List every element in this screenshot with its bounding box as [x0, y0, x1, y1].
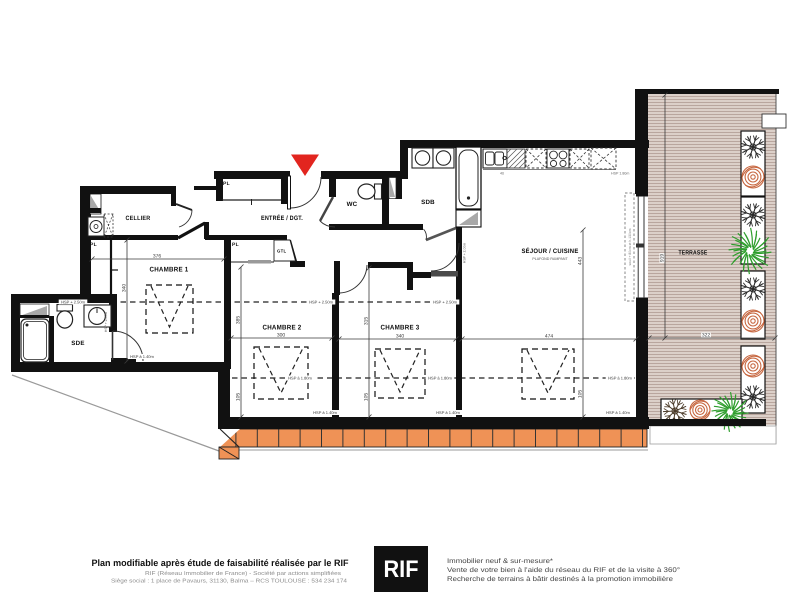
svg-text:443: 443	[578, 257, 584, 266]
svg-text:PL: PL	[90, 242, 97, 248]
svg-text:HSP à 1.40m: HSP à 1.40m	[606, 410, 630, 415]
svg-text:474: 474	[545, 334, 554, 340]
svg-text:seuil + 80cm et h.130cm: seuil + 80cm et h.130cm	[628, 228, 632, 265]
svg-text:WC: WC	[347, 201, 358, 208]
svg-text:300: 300	[277, 333, 286, 339]
svg-text:ENTRÉE / DGT.: ENTRÉE / DGT.	[261, 214, 303, 222]
svg-text:CELLIER: CELLIER	[126, 215, 151, 222]
svg-text:Siège social : 1 place de Pava: Siège social : 1 place de Pavaurs, 31130…	[111, 578, 347, 585]
svg-text:40: 40	[500, 172, 504, 176]
svg-text:HSP + 2.50m: HSP + 2.50m	[61, 300, 85, 305]
svg-text:PLAFOND RAMPANT: PLAFOND RAMPANT	[532, 257, 568, 261]
svg-text:105: 105	[578, 390, 584, 399]
svg-text:HSP + 2.00m: HSP + 2.00m	[463, 243, 467, 263]
svg-text:315: 315	[364, 317, 370, 326]
svg-text:SDB: SDB	[421, 199, 435, 206]
svg-text:CHAMBRE 2: CHAMBRE 2	[263, 325, 302, 332]
svg-text:322: 322	[702, 333, 711, 339]
svg-text:Plan modifiable après étude de: Plan modifiable après étude de faisabili…	[92, 558, 349, 568]
svg-text:HSP à 1.80m: HSP à 1.80m	[288, 376, 312, 381]
svg-text:PL: PL	[232, 242, 239, 248]
svg-text:HSP + 2.50m: HSP + 2.50m	[309, 300, 333, 305]
svg-text:105: 105	[364, 393, 370, 402]
svg-text:SÉJOUR / CUISINE: SÉJOUR / CUISINE	[522, 247, 579, 255]
svg-text:376: 376	[153, 254, 162, 260]
svg-text:CHAMBRE 1: CHAMBRE 1	[150, 267, 189, 274]
svg-text:340: 340	[396, 334, 405, 340]
svg-text:Recherche de terrains à bâtir: Recherche de terrains à bâtir destinés à…	[447, 576, 673, 583]
svg-text:HSP + 2.00m: HSP + 2.00m	[104, 312, 108, 332]
svg-text:Vente de votre bien à l'aide d: Vente de votre bien à l'aide du réseau d…	[447, 567, 680, 574]
svg-text:GTL: GTL	[277, 249, 286, 254]
svg-text:RIF (Réseau Immobilier de Fran: RIF (Réseau Immobilier de France) - Soci…	[145, 570, 341, 577]
svg-text:HSP à 1.40m: HSP à 1.40m	[130, 354, 154, 359]
svg-text:105: 105	[236, 393, 242, 402]
svg-text:SDE: SDE	[71, 340, 84, 347]
svg-text:RIF: RIF	[384, 556, 419, 583]
svg-text:919: 919	[660, 254, 666, 263]
svg-text:340: 340	[122, 284, 128, 293]
svg-text:Immobilier neuf & sur-mesure*: Immobilier neuf & sur-mesure*	[447, 558, 553, 565]
svg-text:HSP + 2.50m: HSP + 2.50m	[433, 300, 457, 305]
svg-text:HSP à 1.80m: HSP à 1.80m	[608, 376, 632, 381]
svg-text:HSP à 1.80m: HSP à 1.80m	[428, 376, 452, 381]
svg-text:HSP 1.80m: HSP 1.80m	[611, 172, 629, 176]
svg-text:HSP à 1.40m: HSP à 1.40m	[436, 410, 460, 415]
svg-text:TERRASSE: TERRASSE	[679, 250, 708, 257]
svg-text:PL: PL	[223, 181, 230, 187]
svg-text:385: 385	[236, 316, 242, 325]
svg-text:CHAMBRE 3: CHAMBRE 3	[381, 325, 420, 332]
svg-text:HSP à 1.40m: HSP à 1.40m	[313, 410, 337, 415]
